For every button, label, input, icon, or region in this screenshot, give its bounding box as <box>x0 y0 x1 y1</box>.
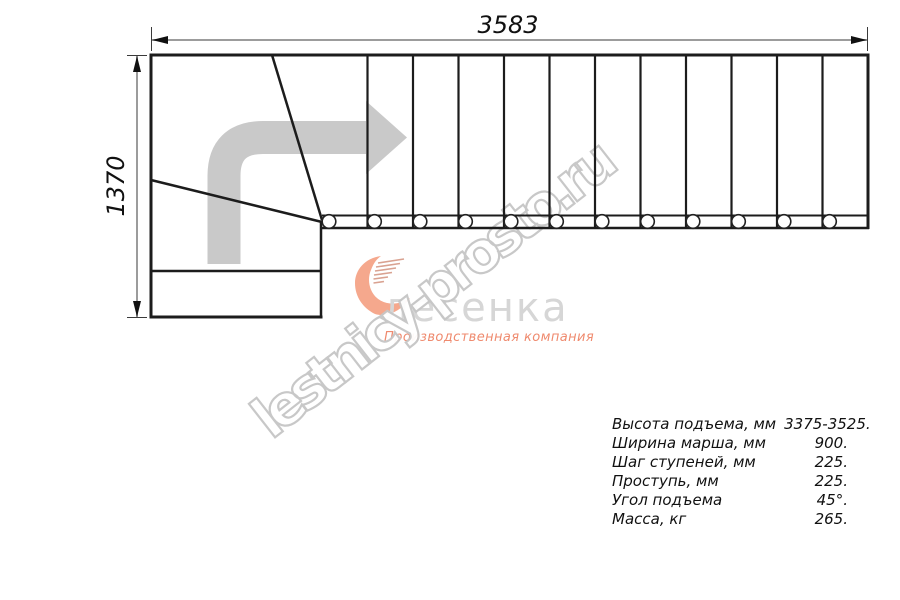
stair-plan-page: лесенка Производственная компания lestni… <box>0 0 900 600</box>
spec-value: 3375-3525. <box>776 415 871 434</box>
spec-value: 45°. <box>809 491 848 510</box>
spec-label: Проступь, мм <box>612 472 719 491</box>
spec-row: Высота подъема, мм 3375-3525. <box>612 415 848 434</box>
spec-label: Шаг ступеней, мм <box>612 453 756 472</box>
spec-label: Ширина марша, мм <box>612 434 766 453</box>
spec-row: Угол подъема 45°. <box>612 491 848 510</box>
spec-label: Высота подъема, мм <box>612 415 776 434</box>
spec-row: Проступь, мм 225. <box>612 472 848 491</box>
spec-value: 225. <box>807 472 848 491</box>
spec-label: Масса, кг <box>612 510 686 529</box>
spec-value: 265. <box>807 510 848 529</box>
spec-row: Масса, кг 265. <box>612 510 848 529</box>
spec-table: Высота подъема, мм 3375-3525. Ширина мар… <box>612 415 848 529</box>
spec-value: 900. <box>807 434 848 453</box>
spec-label: Угол подъема <box>612 491 722 510</box>
spec-value: 225. <box>807 453 848 472</box>
spec-row: Шаг ступеней, мм 225. <box>612 453 848 472</box>
spec-row: Ширина марша, мм 900. <box>612 434 848 453</box>
